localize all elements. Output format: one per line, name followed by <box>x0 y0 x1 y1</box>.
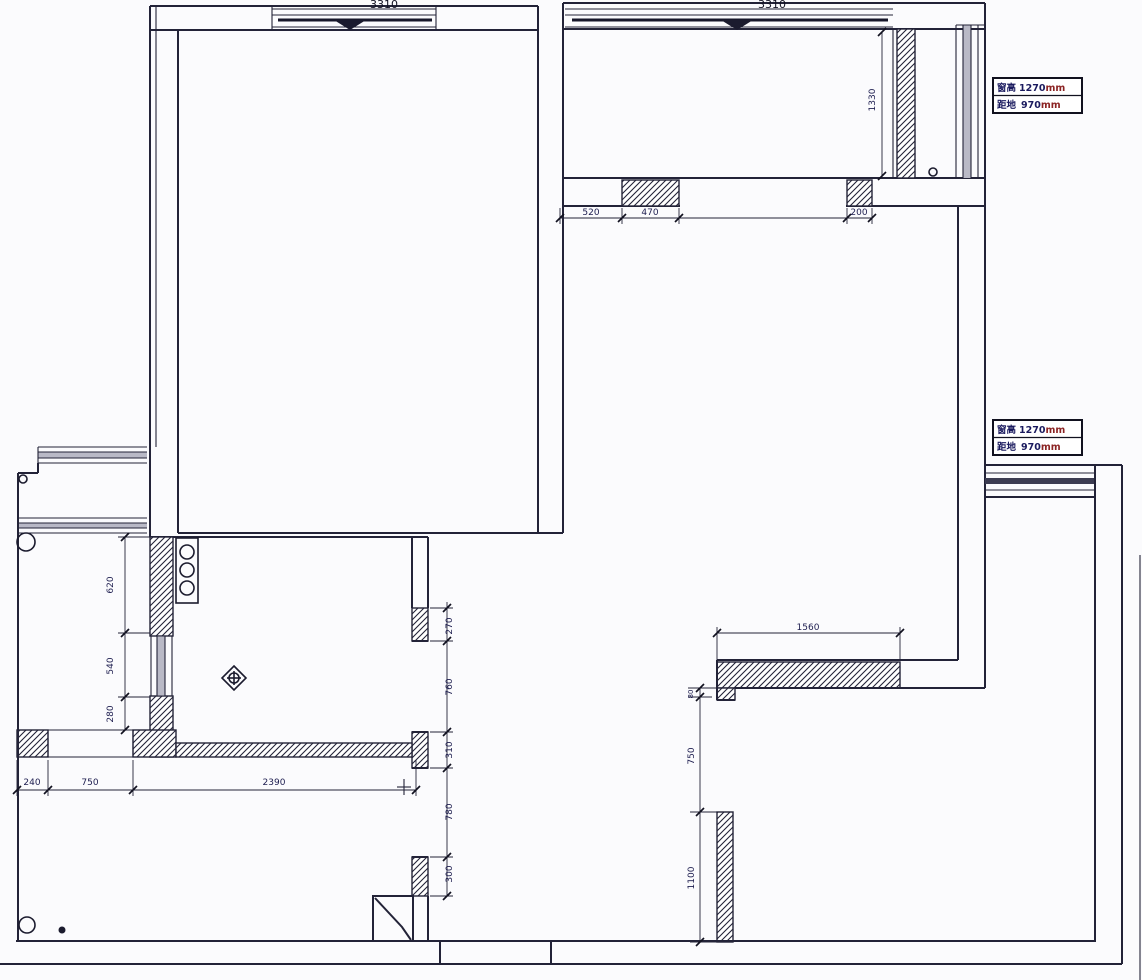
pipe-circle-large <box>17 533 35 551</box>
svg-text:窗高1270mm: 窗高1270mm <box>997 424 1065 436</box>
balcony-north-window <box>565 9 893 30</box>
dim-1100: 1100 <box>687 866 697 889</box>
dim-1330: 1330 <box>868 88 878 111</box>
floor-plan-page: 3310 3310 1330 520 470 200 1560 620 540 … <box>0 0 1142 980</box>
bottom-walls <box>0 941 1122 964</box>
dimension-lines <box>13 28 904 946</box>
dim-200: 200 <box>850 208 867 218</box>
dim-310: 310 <box>445 741 455 758</box>
dim-780: 780 <box>445 803 455 820</box>
window-floor-unit: mm <box>1041 100 1061 111</box>
dim-620: 620 <box>106 576 116 593</box>
window-floor-label: 距地 <box>997 99 1017 111</box>
kitchen-door-mark <box>397 779 411 795</box>
dim-470: 470 <box>641 208 658 218</box>
kitchen-west-window <box>150 636 173 696</box>
dim-520: 520 <box>582 208 599 218</box>
dim-750-south: 750 <box>81 778 98 788</box>
svg-text:距地970mm: 距地970mm <box>997 99 1061 111</box>
living-room-walls <box>717 206 985 700</box>
north-balcony-walls <box>563 3 985 688</box>
window-annotation-box-top: 窗高1270mm 距地970mm <box>993 78 1082 113</box>
dim-80: 80 <box>687 690 695 699</box>
window-annotation-box-middle: 窗高1270mm 距地970mm <box>993 420 1082 455</box>
window-height-label: 窗高 <box>997 82 1017 94</box>
dim-270: 270 <box>445 617 455 634</box>
stove-burners <box>176 538 198 603</box>
svg-text:距地970mm: 距地970mm <box>997 441 1061 453</box>
dim-top-right-3310: 3310 <box>758 0 786 11</box>
window-center-marker <box>334 20 366 30</box>
pipe-circle-small <box>19 475 27 483</box>
dim-top-left-3310: 3310 <box>370 0 398 11</box>
southeast-room-walls <box>985 465 1140 980</box>
dim-760: 760 <box>445 678 455 695</box>
floor-plan-canvas: 3310 3310 1330 520 470 200 1560 620 540 … <box>0 0 1142 980</box>
entry-area-dots <box>19 917 66 934</box>
bedroom-walls <box>150 3 563 537</box>
window-height-value: 1270 <box>1019 83 1046 94</box>
dim-2390: 2390 <box>263 778 286 788</box>
hatched-wall-piers <box>17 29 915 942</box>
dim-280: 280 <box>106 705 116 722</box>
entry-door-symbol <box>373 896 413 941</box>
dim-750-hall: 750 <box>687 747 697 764</box>
pipe-circle <box>929 168 937 176</box>
dim-540: 540 <box>106 657 116 674</box>
kitchen-walls <box>48 537 428 941</box>
window-floor-value: 970 <box>1021 100 1041 111</box>
bedroom-north-window <box>272 6 436 30</box>
dim-240: 240 <box>23 778 40 788</box>
dim-1560: 1560 <box>797 623 820 633</box>
window-height-unit: mm <box>1045 83 1065 94</box>
east-vertical-window <box>956 25 985 178</box>
svg-text:窗高1270mm: 窗高1270mm <box>997 82 1065 94</box>
dim-300: 300 <box>445 865 455 882</box>
floor-drain <box>222 666 246 690</box>
